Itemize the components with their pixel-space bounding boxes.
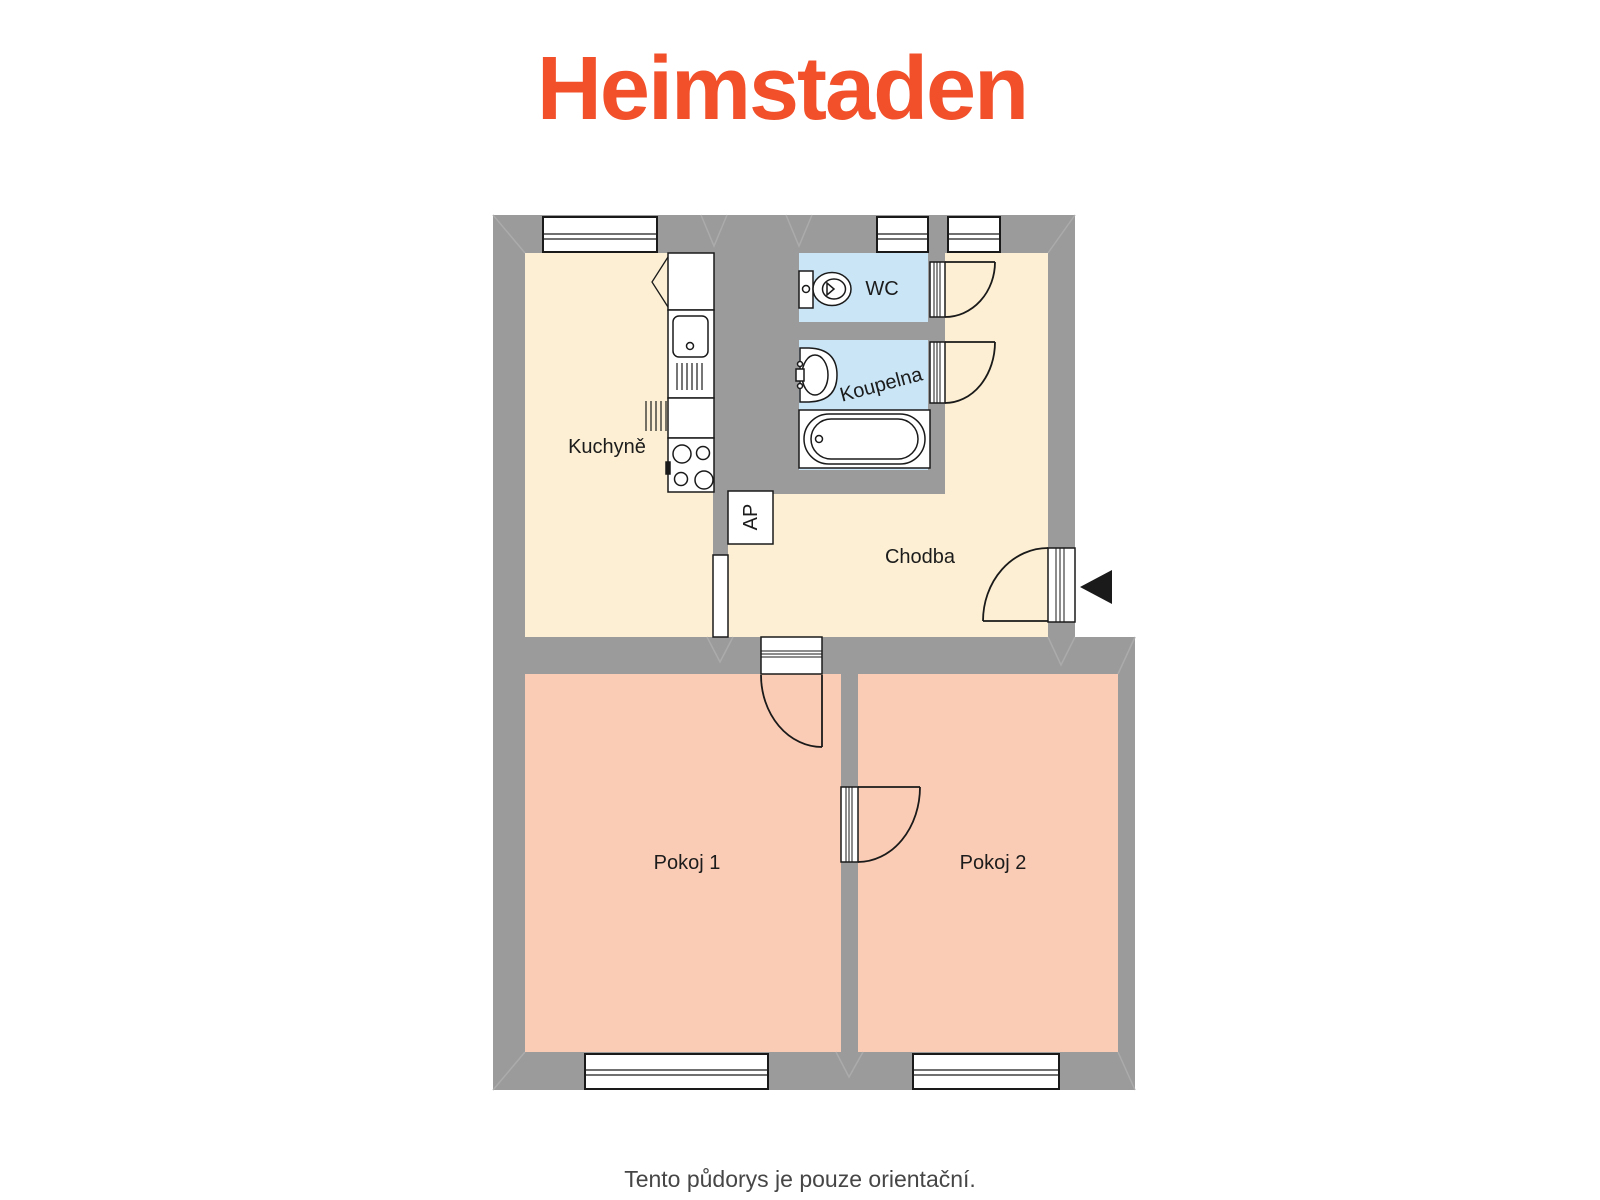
opening-kitchen-hallway <box>713 555 728 637</box>
bathroom-sink <box>796 348 837 402</box>
door-jamb-pokoj1-pokoj2 <box>841 787 858 862</box>
room-label-closet: AP <box>740 504 762 531</box>
room-label-hallway: Chodba <box>885 546 956 568</box>
floor-plan: AP Kuchyně WC Koupelna Chodba Pokoj 1 Po… <box>0 0 1600 1200</box>
door-jamb-bathroom <box>930 342 945 403</box>
door-jamb-pokoj1 <box>761 637 822 674</box>
kitchen-stove <box>666 438 714 492</box>
disclaimer-text: Tento půdorys je pouze orientační. <box>0 1166 1600 1193</box>
door-jamb-wc <box>930 262 945 317</box>
window-pokoj2 <box>913 1054 1059 1089</box>
kitchen-counter-segment <box>668 398 714 438</box>
window-hallway <box>948 217 1000 252</box>
ap-closet: AP <box>728 491 773 544</box>
window-pokoj1 <box>585 1054 768 1089</box>
window-wc <box>877 217 928 252</box>
room-label-wc: WC <box>865 278 898 300</box>
room-label-kitchen: Kuchyně <box>568 436 646 458</box>
entrance-arrow-icon <box>1080 570 1112 604</box>
room-label-pokoj1: Pokoj 1 <box>654 852 721 874</box>
kitchen-cabinet <box>668 253 714 310</box>
toilet <box>799 271 851 308</box>
window-kitchen <box>543 217 657 252</box>
room-label-pokoj2: Pokoj 2 <box>960 852 1027 874</box>
page: Heimstaden <box>0 0 1600 1200</box>
bathtub <box>799 410 930 468</box>
door-jamb-entrance <box>1048 548 1075 622</box>
kitchen-sink <box>668 310 714 398</box>
